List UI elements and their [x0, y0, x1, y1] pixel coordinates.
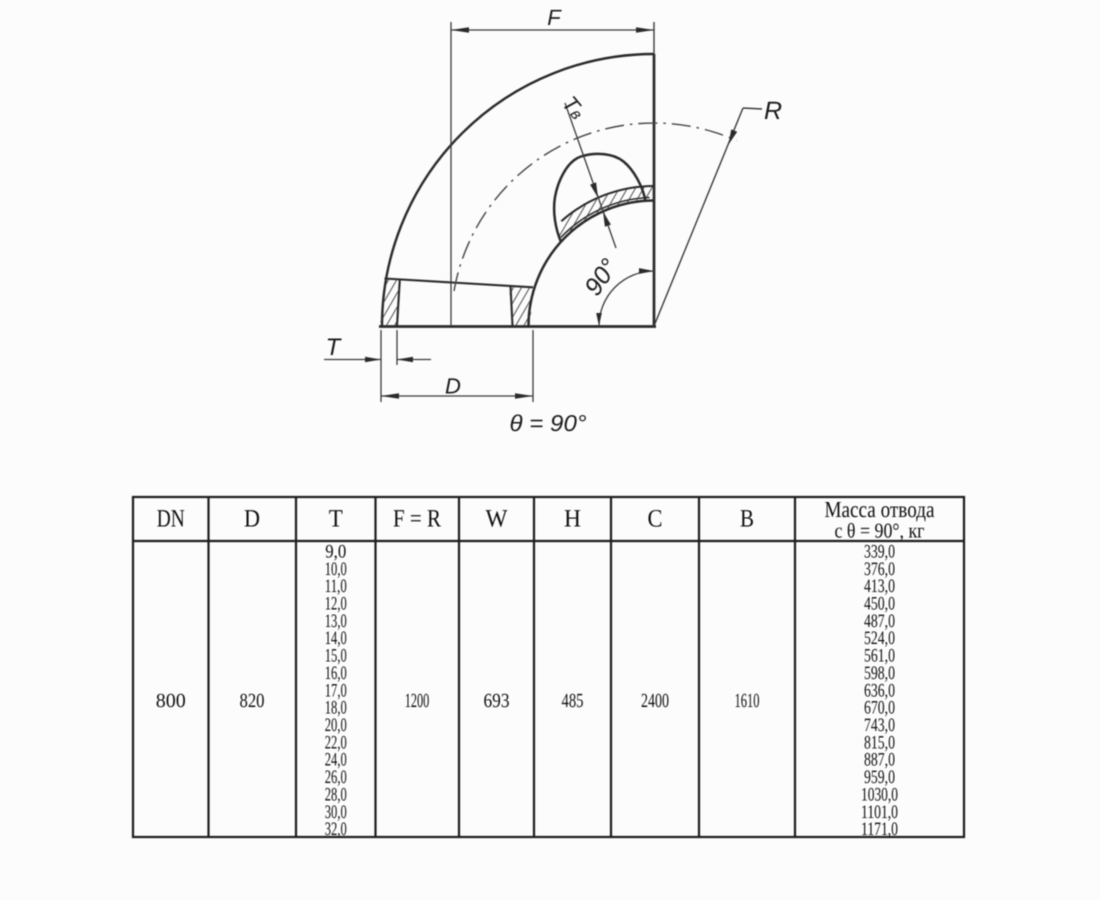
svg-text:DN: DN: [157, 506, 185, 533]
svg-text:W: W: [486, 506, 508, 533]
svg-text:32,0: 32,0: [325, 819, 347, 840]
svg-text:D: D: [244, 506, 260, 533]
svg-text:693: 693: [484, 690, 510, 712]
svg-text:1171,0: 1171,0: [861, 819, 898, 840]
svg-text:θ = 90°: θ = 90°: [510, 410, 587, 436]
svg-text:485: 485: [562, 690, 584, 712]
svg-text:F: F: [547, 5, 562, 30]
svg-text:B: B: [740, 506, 754, 533]
svg-text:R: R: [764, 97, 782, 125]
svg-text:с θ = 90°, кг: с θ = 90°, кг: [835, 519, 925, 543]
svg-text:1610: 1610: [735, 690, 760, 712]
svg-text:2400: 2400: [641, 690, 669, 712]
svg-text:T: T: [326, 334, 343, 361]
svg-text:F = R: F = R: [393, 506, 441, 533]
svg-text:D: D: [445, 374, 461, 399]
svg-text:T: T: [329, 506, 343, 533]
svg-text:820: 820: [240, 690, 265, 712]
svg-text:C: C: [648, 506, 663, 533]
svg-text:800: 800: [156, 690, 186, 712]
svg-text:H: H: [564, 506, 581, 533]
svg-text:1200: 1200: [405, 690, 430, 712]
